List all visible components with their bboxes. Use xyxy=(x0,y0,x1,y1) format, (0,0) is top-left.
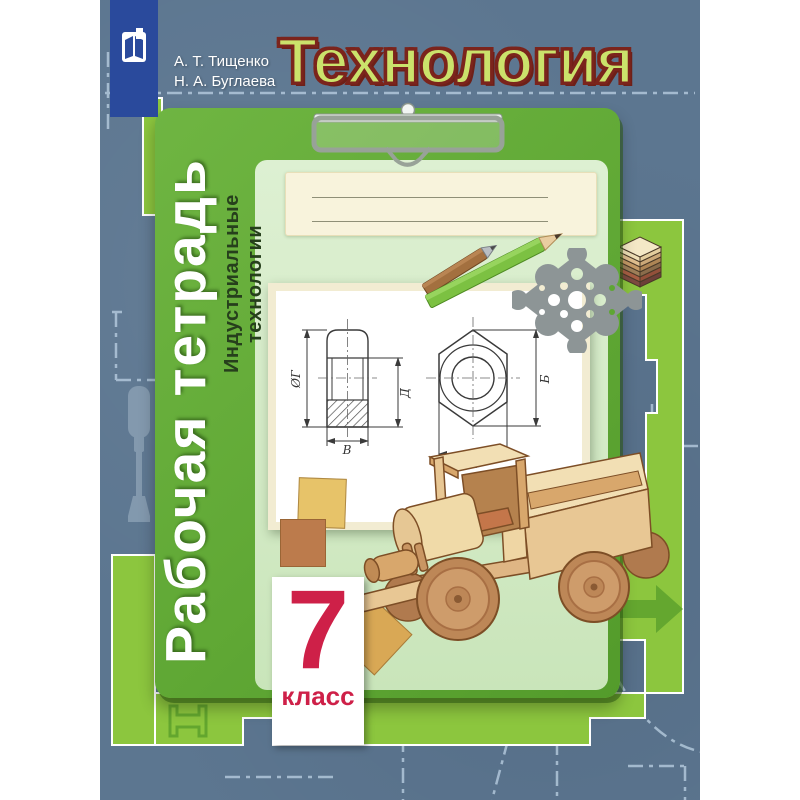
book-cover: А. Т. Тищенко Н. А. Буглаева Технология … xyxy=(100,0,700,800)
series-title-vertical: Рабочая тетрадь xyxy=(155,128,217,694)
author-2: Н. А. Буглаева xyxy=(174,72,275,92)
grade-number: 7 xyxy=(272,575,364,685)
wooden-truck-illustration xyxy=(350,425,670,650)
book-title: Технология xyxy=(278,24,700,98)
fretwork-ornament-icon xyxy=(512,248,642,353)
wood-square-brown xyxy=(280,519,326,567)
grade-card: 7 класс xyxy=(272,577,364,745)
publisher-logo-icon xyxy=(110,0,158,117)
subtitle-vertical: Индустриальные технологии xyxy=(221,138,251,430)
dim-label-diameter: ØГ xyxy=(289,369,303,389)
clipboard-clip-icon xyxy=(308,100,508,208)
grade-word: класс xyxy=(272,681,364,712)
author-1: А. Т. Тищенко xyxy=(174,52,275,72)
book-cover-photo: { "cover": { "author1": "А. Т. Тищенко",… xyxy=(0,0,800,800)
publisher-strip xyxy=(110,0,158,117)
dim-label-across-corners: Б xyxy=(538,374,552,384)
authors: А. Т. Тищенко Н. А. Буглаева xyxy=(174,52,275,92)
lime-bottom-strip xyxy=(155,693,645,745)
dim-label-height: Д xyxy=(398,388,412,399)
lime-left-strip xyxy=(112,555,155,745)
